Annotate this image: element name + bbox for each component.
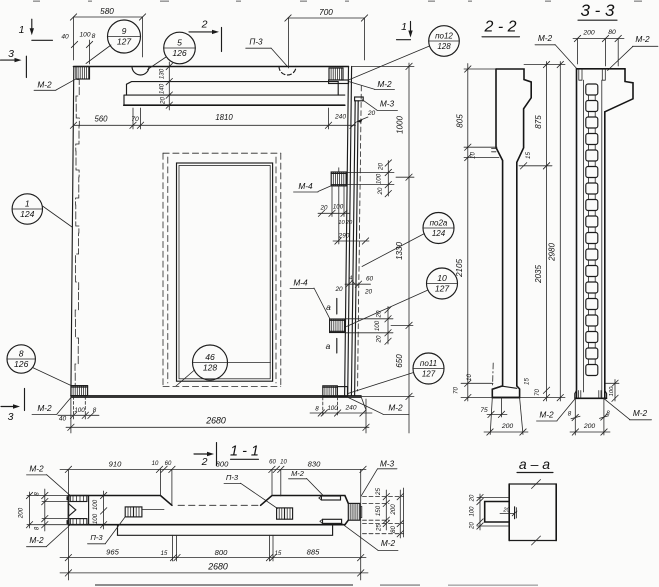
svg-text:80: 80 — [390, 526, 397, 533]
svg-text:М-3: М-3 — [380, 99, 395, 109]
svg-text:100: 100 — [79, 32, 90, 39]
svg-text:М-2: М-2 — [539, 410, 554, 420]
svg-text:127: 127 — [422, 370, 436, 379]
svg-text:40: 40 — [61, 34, 69, 41]
svg-text:200: 200 — [582, 30, 595, 37]
svg-text:100: 100 — [609, 386, 615, 396]
svg-text:20: 20 — [502, 508, 510, 514]
svg-text:100: 100 — [74, 407, 85, 414]
svg-text:128: 128 — [203, 363, 218, 373]
svg-text:20: 20 — [377, 187, 384, 195]
svg-text:5: 5 — [177, 37, 182, 47]
svg-text:240: 240 — [334, 114, 346, 121]
svg-text:910: 910 — [109, 460, 122, 469]
svg-text:1000: 1000 — [396, 116, 405, 134]
svg-text:1: 1 — [25, 198, 30, 208]
svg-text:П-3: П-3 — [90, 533, 103, 542]
svg-text:100: 100 — [376, 173, 383, 184]
svg-text:650: 650 — [395, 354, 404, 368]
svg-text:2980: 2980 — [548, 243, 557, 262]
svg-text:15: 15 — [524, 378, 531, 385]
svg-text:885: 885 — [307, 548, 320, 557]
svg-text:10: 10 — [338, 220, 345, 226]
svg-text:805: 805 — [456, 114, 465, 128]
svg-text:10: 10 — [437, 273, 447, 283]
svg-text:100: 100 — [333, 204, 344, 211]
svg-text:15: 15 — [161, 551, 168, 557]
svg-text:2105: 2105 — [455, 259, 464, 278]
svg-text:8: 8 — [92, 33, 96, 40]
svg-text:20: 20 — [334, 286, 343, 293]
svg-text:2680: 2680 — [205, 416, 226, 426]
svg-text:140: 140 — [159, 83, 166, 94]
svg-text:П-3: П-3 — [249, 38, 263, 47]
svg-text:8: 8 — [315, 406, 319, 413]
svg-text:1810: 1810 — [215, 113, 233, 122]
svg-text:70: 70 — [453, 387, 460, 394]
svg-text:20: 20 — [320, 205, 328, 212]
svg-text:100: 100 — [92, 499, 99, 510]
svg-text:126: 126 — [172, 48, 187, 58]
svg-text:М-2: М-2 — [538, 33, 553, 43]
svg-text:М-2: М-2 — [377, 79, 392, 89]
svg-text:700: 700 — [319, 8, 333, 17]
svg-text:20: 20 — [364, 289, 373, 296]
svg-text:200: 200 — [390, 504, 397, 516]
svg-text:М-4: М-4 — [293, 278, 308, 288]
svg-text:М-2: М-2 — [29, 464, 44, 474]
svg-text:70: 70 — [131, 116, 139, 123]
svg-text:20: 20 — [376, 335, 383, 343]
svg-text:580: 580 — [100, 7, 114, 16]
svg-text:200: 200 — [501, 423, 514, 430]
svg-text:П-3: П-3 — [226, 473, 239, 482]
svg-text:124: 124 — [432, 229, 446, 238]
svg-text:2: 2 — [201, 456, 208, 468]
svg-text:по12: по12 — [435, 31, 453, 40]
svg-text:20: 20 — [470, 494, 476, 502]
svg-text:200: 200 — [18, 507, 25, 519]
svg-text:2680: 2680 — [207, 562, 228, 572]
svg-text:100: 100 — [327, 405, 338, 412]
svg-text:2: 2 — [201, 19, 208, 31]
svg-text:8: 8 — [19, 348, 24, 358]
svg-text:М-2: М-2 — [291, 469, 304, 478]
svg-text:М-4: М-4 — [298, 181, 313, 191]
svg-text:127: 127 — [435, 284, 451, 294]
svg-text:10: 10 — [152, 461, 159, 467]
svg-text:100: 100 — [374, 320, 381, 331]
svg-text:9: 9 — [122, 26, 127, 36]
svg-text:100: 100 — [92, 513, 99, 524]
svg-text:800: 800 — [215, 548, 228, 557]
svg-text:10: 10 — [280, 460, 287, 466]
svg-text:20: 20 — [367, 110, 376, 117]
svg-text:М-2: М-2 — [388, 403, 403, 413]
svg-text:8: 8 — [568, 411, 572, 418]
svg-text:200: 200 — [583, 423, 596, 430]
svg-text:а: а — [326, 341, 331, 351]
svg-text:по2а: по2а — [430, 218, 448, 227]
svg-text:20: 20 — [160, 97, 167, 105]
svg-text:а: а — [326, 302, 331, 312]
svg-text:290: 290 — [338, 233, 350, 240]
svg-text:100: 100 — [470, 506, 476, 517]
svg-text:240: 240 — [344, 405, 356, 412]
svg-text:124: 124 — [20, 209, 35, 219]
svg-text:60: 60 — [165, 461, 172, 467]
svg-text:15: 15 — [525, 152, 532, 159]
svg-text:по11: по11 — [420, 359, 437, 368]
svg-text:70: 70 — [534, 389, 541, 396]
svg-text:25: 25 — [376, 524, 383, 532]
svg-text:130: 130 — [159, 68, 166, 79]
svg-text:128: 128 — [437, 42, 451, 51]
svg-text:60: 60 — [269, 460, 276, 466]
svg-text:3: 3 — [8, 411, 14, 423]
svg-text:3: 3 — [8, 48, 14, 60]
svg-text:М-2: М-2 — [635, 34, 650, 44]
svg-text:2035: 2035 — [534, 265, 543, 284]
svg-text:3 - 3: 3 - 3 — [580, 1, 615, 20]
svg-text:а – а: а – а — [519, 456, 550, 472]
svg-text:1: 1 — [19, 24, 25, 36]
svg-text:М-2: М-2 — [381, 538, 396, 548]
svg-text:875: 875 — [534, 115, 543, 129]
svg-text:60: 60 — [366, 276, 374, 283]
svg-text:8: 8 — [93, 407, 97, 414]
svg-text:20: 20 — [470, 522, 476, 530]
svg-text:126: 126 — [14, 359, 29, 369]
svg-text:10: 10 — [466, 374, 473, 381]
svg-text:М-2: М-2 — [37, 80, 52, 90]
svg-text:1: 1 — [401, 21, 407, 33]
svg-text:1330: 1330 — [395, 242, 404, 260]
svg-text:20: 20 — [345, 220, 353, 226]
svg-text:2 - 2: 2 - 2 — [483, 19, 516, 36]
svg-text:М-2: М-2 — [633, 408, 648, 418]
svg-text:75: 75 — [480, 407, 488, 414]
svg-text:25: 25 — [375, 488, 382, 496]
svg-text:М-2: М-2 — [37, 403, 52, 413]
svg-text:1 - 1: 1 - 1 — [230, 444, 259, 460]
svg-text:800: 800 — [216, 460, 229, 469]
svg-text:965: 965 — [106, 548, 119, 557]
svg-text:150: 150 — [375, 505, 382, 516]
svg-text:560: 560 — [94, 115, 108, 124]
svg-text:20: 20 — [378, 163, 385, 171]
svg-text:830: 830 — [308, 460, 321, 469]
svg-text:М-2: М-2 — [29, 535, 44, 545]
svg-text:80: 80 — [608, 29, 616, 36]
svg-text:15: 15 — [275, 551, 282, 557]
svg-text:М-3: М-3 — [380, 459, 395, 469]
svg-text:127: 127 — [117, 37, 133, 47]
svg-text:40: 40 — [59, 416, 67, 423]
svg-text:46: 46 — [205, 352, 215, 362]
